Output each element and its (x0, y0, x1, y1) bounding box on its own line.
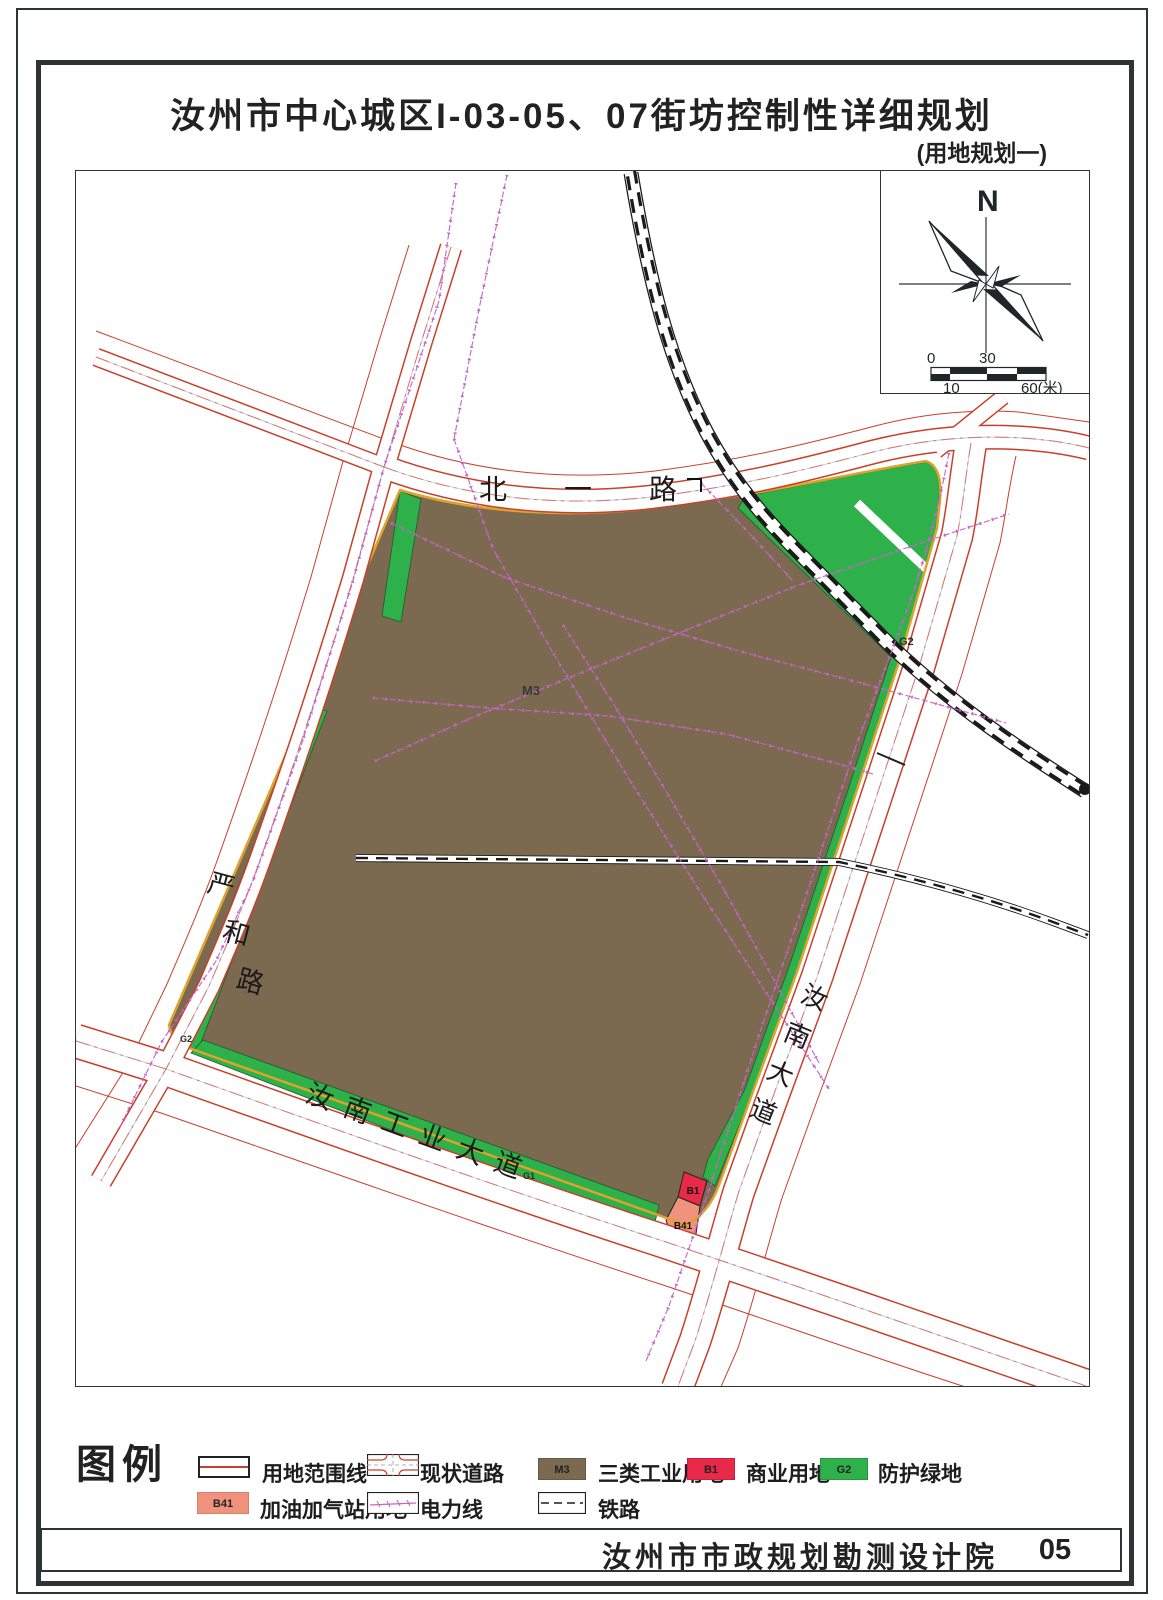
north-arrow-canvas: N 0 30 10 60(米) (881, 171, 1089, 393)
zone-label-b41: B41 (674, 1221, 693, 1232)
zone-label-g2-northeast: G2 (899, 636, 914, 648)
road-label-beiyilu: 北一路 (479, 474, 734, 505)
north-arrow-panel: N 0 30 10 60(米) (880, 170, 1090, 394)
scale-label-0: 0 (927, 350, 935, 367)
legend-symbol-boundary-line (198, 1456, 250, 1478)
scale-label-60m: 60(米) (1021, 380, 1063, 393)
planning-sheet: { "page": { "title": "汝州市中心城区I-03-05、07街… (0, 0, 1163, 1600)
page-title: 汝州市中心城区I-03-05、07街坊控制性详细规划 (0, 88, 1163, 139)
legend-code-b41: B41 (213, 1498, 233, 1510)
north-label: N (977, 185, 999, 218)
compass-rose-icon (899, 217, 1071, 353)
legend-symbol-existing-road (367, 1454, 419, 1476)
sheet-number: 05 (1010, 1534, 1100, 1567)
legend-symbol-m3: M3 (538, 1458, 586, 1480)
legend-symbol-b41: B41 (197, 1492, 249, 1514)
scale-label-30: 30 (979, 350, 996, 367)
legend-symbol-b1: B1 (687, 1458, 735, 1480)
legend-label-g2: 防护绿地 (878, 1458, 962, 1488)
legend-code-m3: M3 (554, 1464, 569, 1476)
legend-symbol-g2: G2 (820, 1458, 868, 1480)
legend-code-g2: G2 (837, 1464, 852, 1476)
legend-symbol-power-line (367, 1492, 419, 1514)
legend-label-boundary-line: 用地范围线 (262, 1458, 367, 1488)
scale-bar: 0 30 10 60(米) (927, 350, 1063, 393)
legend-symbol-railway (538, 1492, 586, 1514)
scale-label-10: 10 (943, 380, 960, 393)
legend-label-existing-road: 现状道路 (420, 1458, 504, 1488)
legend-label-b1: 商业用地 (746, 1458, 830, 1488)
legend-label-power-line: 电力线 (420, 1494, 483, 1524)
zone-label-m3: M3 (522, 683, 540, 698)
design-institute-name: 汝州市市政规划勘测设计院 (520, 1534, 1080, 1576)
zone-label-g2-southwest: G2 (180, 1034, 192, 1044)
legend-code-b1: B1 (704, 1464, 718, 1476)
legend-title: 图例 (76, 1432, 168, 1490)
zone-label-b1: B1 (687, 1186, 700, 1197)
zone-label-g1-south: G1 (523, 1171, 535, 1181)
page-subtitle: (用地规划一) (917, 134, 1047, 168)
legend-label-railway: 铁路 (598, 1494, 640, 1524)
